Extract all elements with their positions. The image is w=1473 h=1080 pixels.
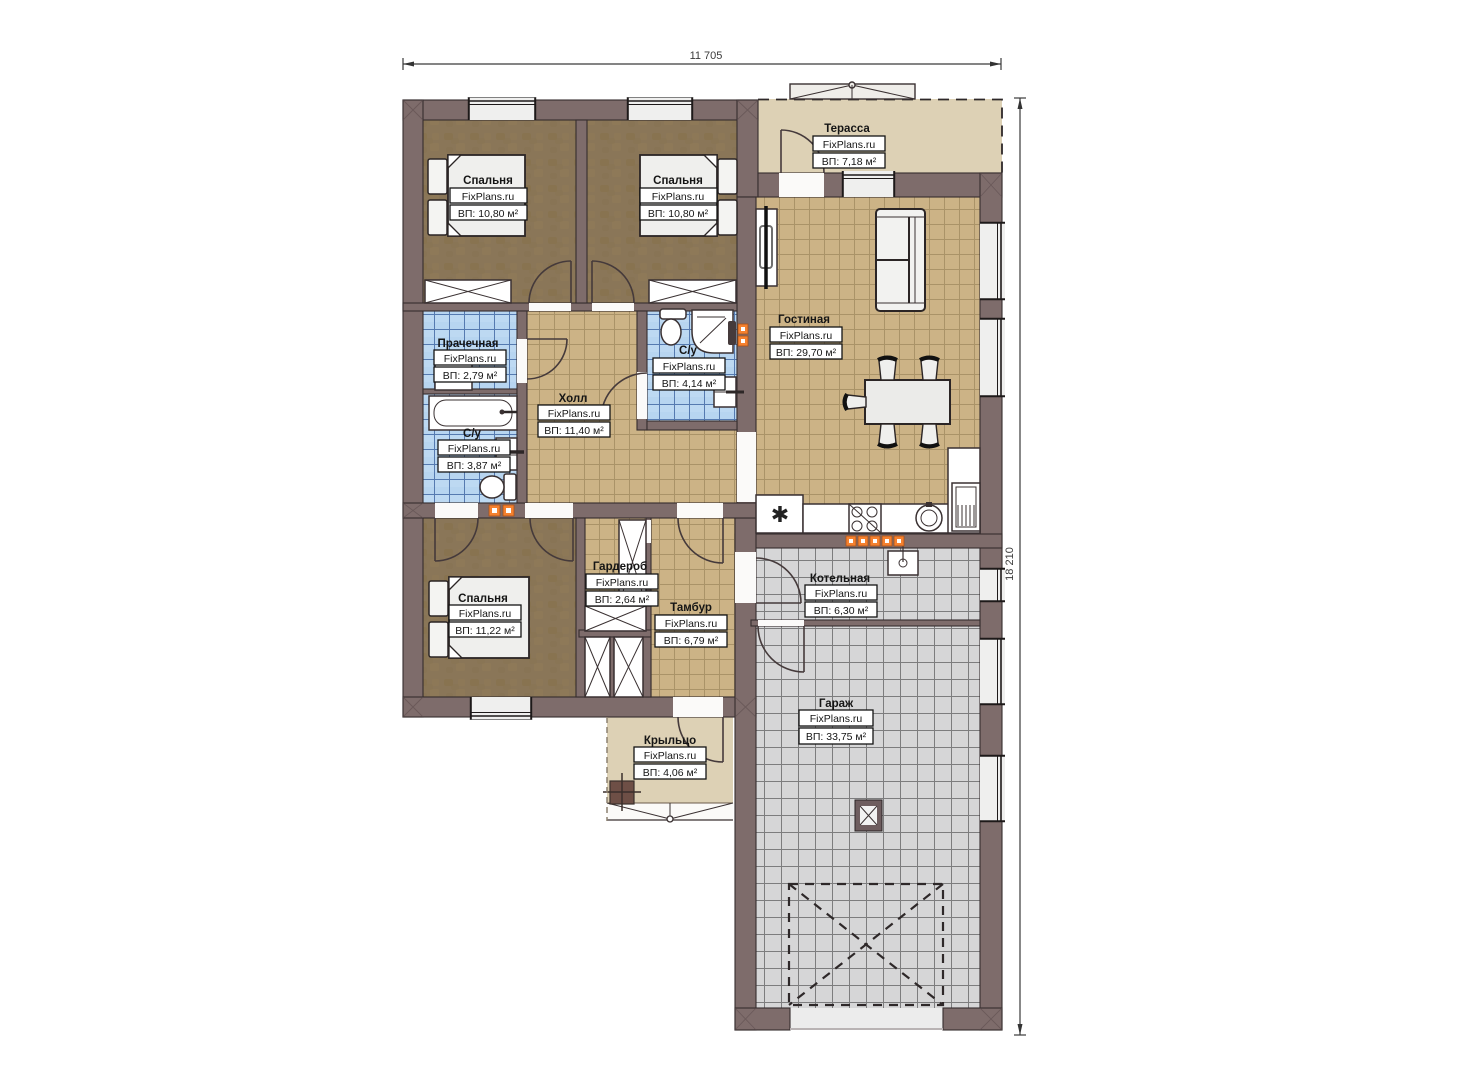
svg-text:FixPlans.ru: FixPlans.ru [459, 608, 512, 620]
svg-text:18 210: 18 210 [1004, 547, 1016, 581]
svg-text:FixPlans.ru: FixPlans.ru [823, 139, 876, 151]
svg-text:ВП: 3,87 м²: ВП: 3,87 м² [447, 460, 502, 472]
svg-text:ВП: 2,79 м²: ВП: 2,79 м² [443, 370, 498, 382]
svg-text:ВП: 10,80 м²: ВП: 10,80 м² [648, 208, 709, 220]
svg-text:С/у: С/у [679, 345, 698, 357]
svg-text:ВП: 7,18 м²: ВП: 7,18 м² [822, 156, 877, 168]
svg-text:FixPlans.ru: FixPlans.ru [448, 443, 501, 455]
svg-text:Гараж: Гараж [819, 698, 854, 710]
svg-text:✱: ✱ [771, 502, 789, 527]
svg-text:Гостиная: Гостиная [778, 314, 830, 326]
svg-text:FixPlans.ru: FixPlans.ru [810, 713, 863, 725]
svg-text:FixPlans.ru: FixPlans.ru [780, 330, 833, 342]
svg-text:FixPlans.ru: FixPlans.ru [815, 588, 868, 600]
svg-text:FixPlans.ru: FixPlans.ru [652, 191, 705, 203]
svg-text:ВП: 4,14 м²: ВП: 4,14 м² [662, 378, 717, 390]
svg-text:Спальня: Спальня [458, 593, 508, 605]
svg-text:ВП: 33,75 м²: ВП: 33,75 м² [806, 731, 867, 743]
svg-text:Терасса: Терасса [824, 123, 870, 135]
svg-text:Гардероб: Гардероб [593, 561, 647, 573]
svg-text:FixPlans.ru: FixPlans.ru [462, 191, 515, 203]
svg-text:FixPlans.ru: FixPlans.ru [663, 361, 716, 373]
svg-text:ВП: 6,79 м²: ВП: 6,79 м² [664, 635, 719, 647]
svg-text:ВП: 29,70 м²: ВП: 29,70 м² [776, 347, 837, 359]
svg-text:FixPlans.ru: FixPlans.ru [665, 618, 718, 630]
svg-text:ВП: 11,40 м²: ВП: 11,40 м² [544, 425, 604, 437]
svg-text:FixPlans.ru: FixPlans.ru [548, 408, 601, 420]
svg-text:ВП: 6,30 м²: ВП: 6,30 м² [814, 605, 869, 617]
svg-text:Спальня: Спальня [653, 175, 703, 187]
svg-text:FixPlans.ru: FixPlans.ru [596, 577, 649, 589]
svg-text:Крыльцо: Крыльцо [644, 735, 696, 747]
svg-text:Прачечная: Прачечная [438, 338, 499, 350]
svg-text:ВП: 11,22 м²: ВП: 11,22 м² [455, 625, 515, 637]
svg-text:11 705: 11 705 [690, 50, 723, 62]
svg-text:Тамбур: Тамбур [670, 602, 712, 614]
svg-text:Котельная: Котельная [810, 573, 870, 585]
svg-text:ВП: 4,06 м²: ВП: 4,06 м² [643, 767, 698, 779]
svg-text:С/у: С/у [463, 428, 482, 440]
svg-text:ВП: 2,64 м²: ВП: 2,64 м² [595, 594, 650, 606]
svg-text:ВП: 10,80 м²: ВП: 10,80 м² [458, 208, 519, 220]
svg-text:Спальня: Спальня [463, 175, 513, 187]
svg-text:Холл: Холл [559, 393, 588, 405]
svg-text:FixPlans.ru: FixPlans.ru [444, 353, 497, 365]
svg-text:FixPlans.ru: FixPlans.ru [644, 750, 697, 762]
